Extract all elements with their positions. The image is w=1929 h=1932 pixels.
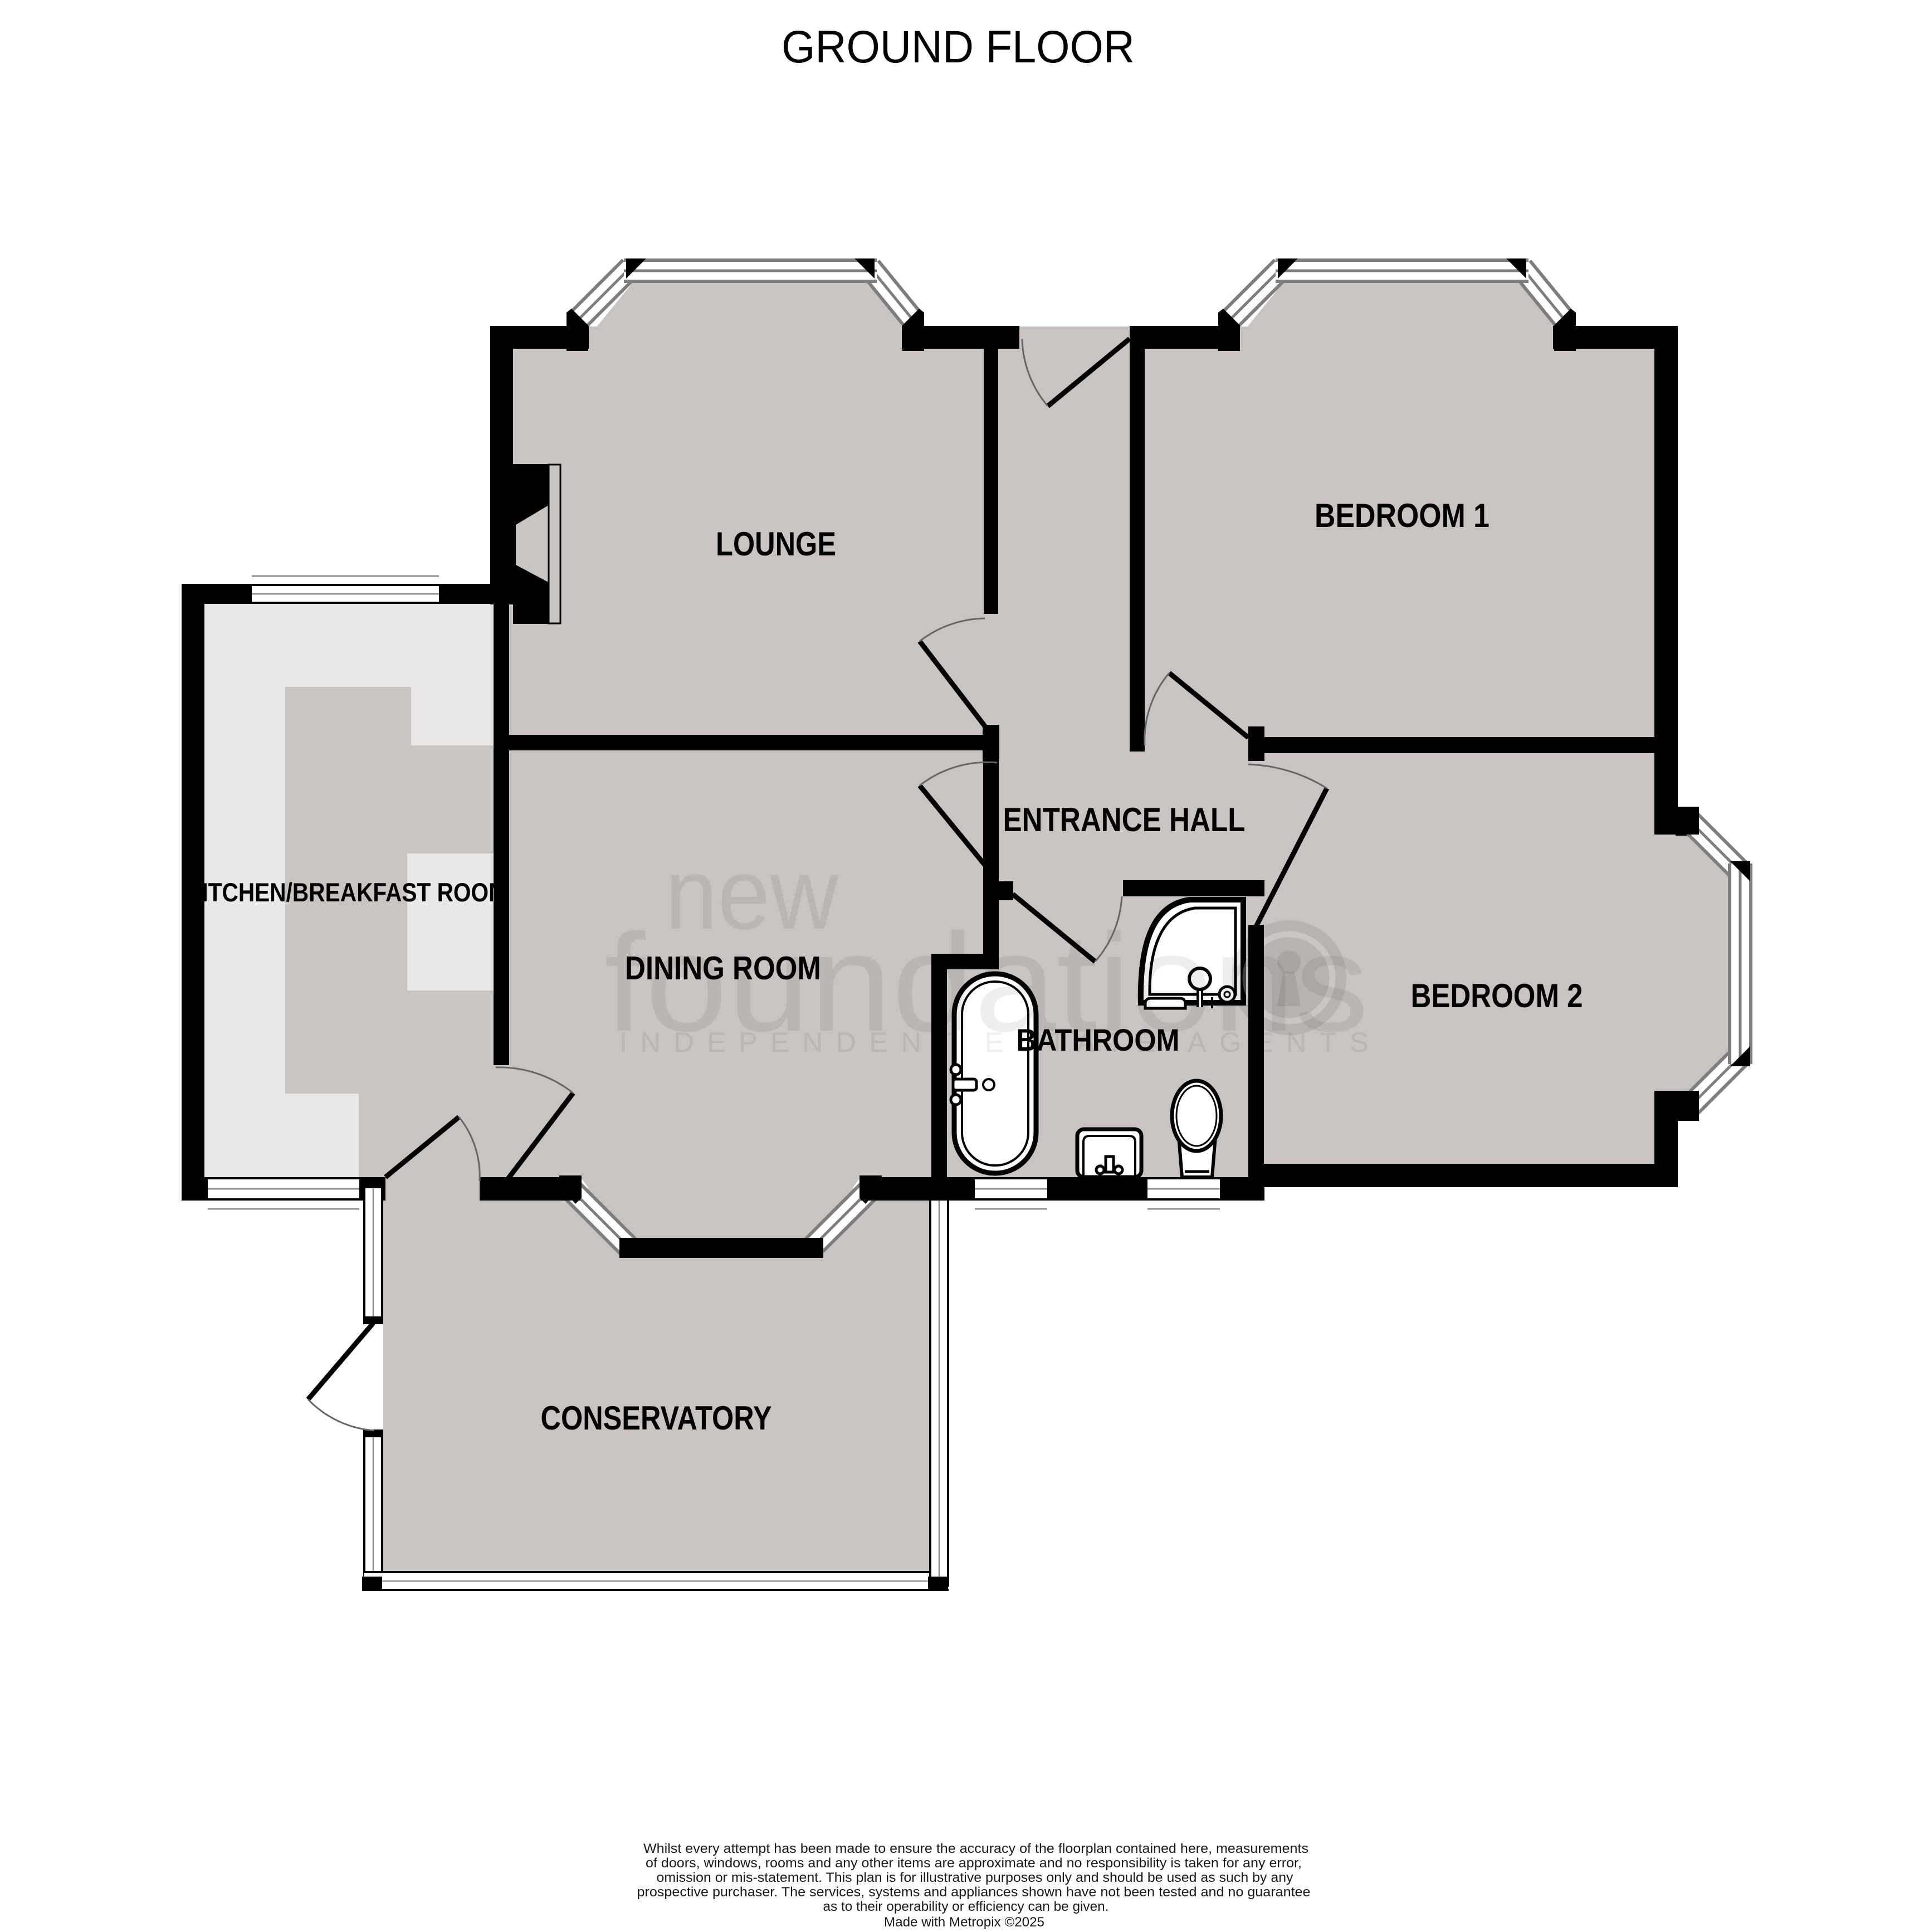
- svg-text:Made with Metropix ©2025: Made with Metropix ©2025: [884, 1915, 1044, 1930]
- svg-text:Whilst every attempt has been: Whilst every attempt has been made to en…: [643, 1841, 1308, 1856]
- svg-text:INDEPENDENT ESTATE AGENTS: INDEPENDENT ESTATE AGENTS: [619, 1027, 1381, 1058]
- svg-text:BATHROOM: BATHROOM: [1017, 1022, 1180, 1057]
- svg-text:DINING ROOM: DINING ROOM: [625, 950, 821, 987]
- svg-text:as to their operability or eff: as to their operability or efficiency ca…: [823, 1899, 1109, 1914]
- svg-text:KITCHEN/BREAKFAST ROOM: KITCHEN/BREAKFAST ROOM: [185, 877, 507, 907]
- svg-text:BEDROOM 2: BEDROOM 2: [1411, 977, 1583, 1014]
- svg-text:LOUNGE: LOUNGE: [716, 525, 836, 563]
- svg-text:CONSERVATORY: CONSERVATORY: [541, 1399, 772, 1437]
- svg-text:of doors, windows, rooms and a: of doors, windows, rooms and any other i…: [646, 1856, 1302, 1871]
- svg-text:ENTRANCE HALL: ENTRANCE HALL: [1003, 801, 1246, 838]
- svg-text:omission or mis-statement. Thi: omission or mis-statement. This plan is …: [657, 1870, 1293, 1885]
- svg-text:prospective purchaser. The ser: prospective purchaser. The services, sys…: [637, 1885, 1311, 1900]
- svg-text:BEDROOM 1: BEDROOM 1: [1315, 497, 1490, 534]
- svg-text:GROUND FLOOR: GROUND FLOOR: [782, 22, 1135, 72]
